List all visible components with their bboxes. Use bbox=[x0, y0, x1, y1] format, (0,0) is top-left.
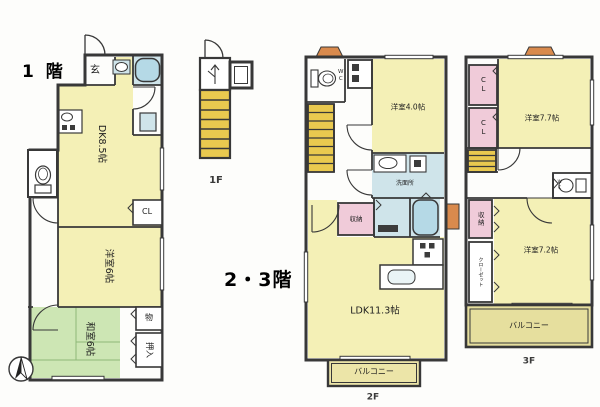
balcony-label-2f: バルコニー bbox=[354, 368, 394, 376]
wardrobe-label-3f: クローゼット bbox=[478, 257, 483, 287]
stair-door-arc bbox=[205, 40, 223, 58]
floor2-plan bbox=[304, 47, 459, 386]
storage-mono-label: 物 bbox=[145, 314, 153, 322]
washroom-label: 洗面所 bbox=[396, 181, 414, 187]
closet2-label-3f: CL bbox=[480, 119, 487, 137]
stair-treads-1f bbox=[200, 90, 230, 158]
stair-closet-inner bbox=[235, 67, 248, 84]
stairs-3f bbox=[468, 150, 496, 172]
balcony-label-3f: バルコニー bbox=[509, 322, 549, 330]
floor23-title: 2・3階 bbox=[224, 271, 292, 290]
kitchen-counter-1f bbox=[59, 110, 82, 133]
room-label-western6: 洋室6帖 bbox=[103, 249, 113, 284]
closet-cl-label-1f: CL bbox=[142, 208, 152, 216]
washing-machine-1f bbox=[140, 113, 156, 131]
wc-label-3f: WC bbox=[557, 180, 562, 192]
stair-detail-label: 1F bbox=[209, 176, 223, 186]
bay-window-2f bbox=[446, 204, 459, 229]
storage-label-3f: 収納 bbox=[477, 212, 484, 227]
floorplan-image: 1 階 玄 DK8.5帖 洋室6帖 和室6帖 物 押入 CL 1F 2・3階 W… bbox=[0, 0, 600, 407]
storage-label-2f: 収納 bbox=[350, 216, 363, 223]
floor2-tag: 2F bbox=[367, 394, 379, 403]
room-label-ldk: LDK11.3帖 bbox=[350, 306, 400, 316]
room-label-western77: 洋室7.7帖 bbox=[525, 114, 559, 122]
room-label-japanese6: 和室6帖 bbox=[84, 322, 94, 357]
room-label-dk: DK8.5帖 bbox=[96, 125, 106, 163]
vanity-sink-1f bbox=[113, 60, 130, 74]
entrance-door-arc bbox=[85, 35, 105, 55]
room-label-western72: 洋室7.2帖 bbox=[524, 246, 558, 254]
toilet-1f bbox=[35, 166, 51, 193]
genkan-label: 玄 bbox=[90, 66, 100, 76]
stairs-2f bbox=[308, 104, 334, 172]
wc-label-2f: WC bbox=[337, 69, 343, 83]
stair-detail-1f bbox=[200, 40, 252, 158]
bathtub-2f bbox=[413, 200, 438, 235]
floor1-title: 1 階 bbox=[22, 64, 66, 81]
bathtub-1f bbox=[136, 59, 160, 82]
compass-icon bbox=[9, 357, 33, 381]
room-label-western4: 洋室4.0帖 bbox=[391, 103, 425, 111]
floor3-tag: 3F bbox=[523, 358, 535, 367]
washroom-door-arc-1f bbox=[133, 87, 155, 109]
toilet-2f bbox=[311, 70, 336, 87]
utility-fixture-2f bbox=[348, 60, 372, 88]
vanity-sink-2f bbox=[374, 155, 426, 172]
closet1-label-3f: CL bbox=[480, 76, 487, 94]
room-western77-floor bbox=[498, 59, 590, 148]
oshiire-label: 押入 bbox=[145, 342, 153, 358]
bath-counter-2f bbox=[378, 225, 398, 232]
